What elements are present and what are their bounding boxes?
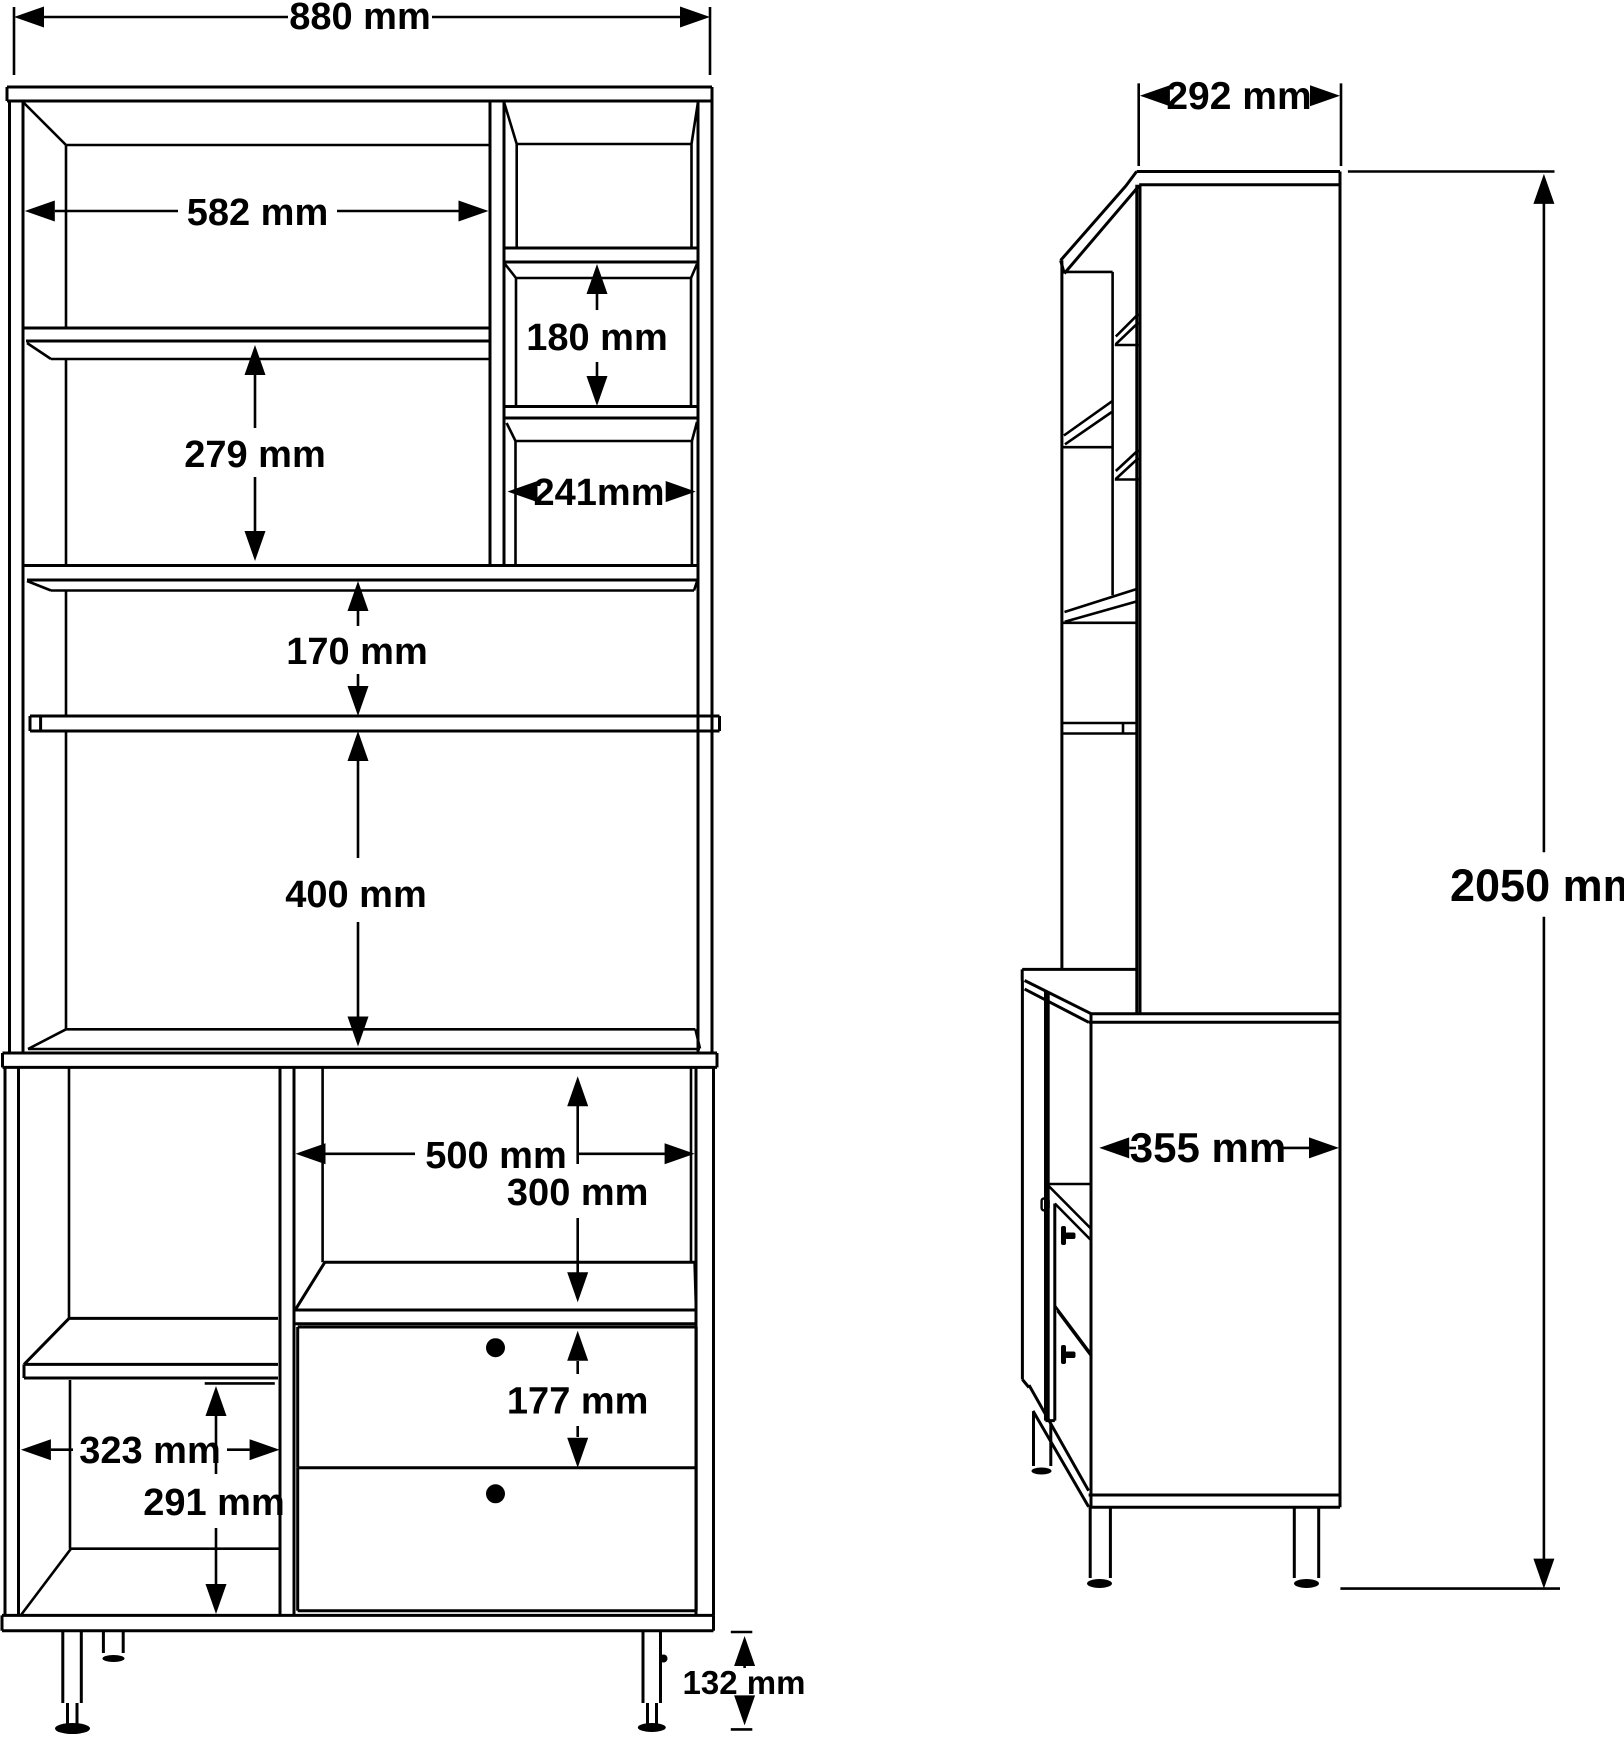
svg-text:500 mm: 500 mm	[425, 1135, 567, 1177]
svg-text:323 mm: 323 mm	[79, 1430, 221, 1472]
svg-text:880 mm: 880 mm	[289, 0, 431, 38]
svg-text:170 mm: 170 mm	[286, 631, 428, 673]
svg-text:400 mm: 400 mm	[285, 874, 427, 916]
svg-text:132 mm: 132 mm	[683, 1664, 806, 1701]
svg-text:582 mm: 582 mm	[187, 192, 329, 234]
svg-text:180 mm: 180 mm	[526, 317, 668, 359]
svg-text:2050 mm: 2050 mm	[1450, 860, 1624, 911]
svg-text:279 mm: 279 mm	[184, 434, 326, 476]
svg-text:300 mm: 300 mm	[507, 1172, 649, 1214]
svg-text:355 mm: 355 mm	[1130, 1124, 1286, 1171]
svg-text:291 mm: 291 mm	[143, 1482, 285, 1524]
svg-text:177 mm: 177 mm	[507, 1381, 649, 1423]
svg-text:241mm: 241mm	[534, 472, 665, 514]
svg-text:292 mm: 292 mm	[1166, 75, 1311, 118]
